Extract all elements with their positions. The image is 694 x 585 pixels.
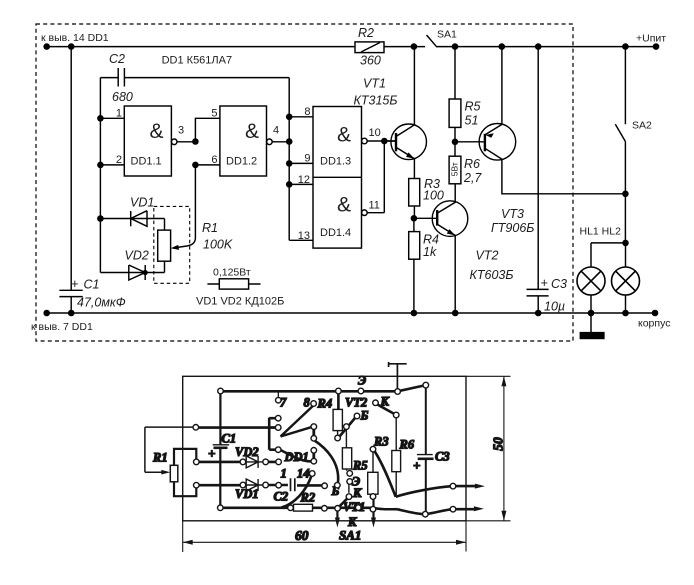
- svg-text:VD2: VD2: [125, 249, 149, 263]
- svg-text:R2: R2: [300, 491, 316, 505]
- svg-text:R1: R1: [152, 451, 168, 465]
- svg-text:DD1.1: DD1.1: [131, 156, 162, 168]
- svg-text:VD2: VD2: [235, 445, 259, 459]
- svg-text:C2: C2: [274, 490, 289, 504]
- svg-text:680: 680: [112, 90, 133, 104]
- svg-text:R6: R6: [399, 438, 415, 452]
- svg-text:R1: R1: [202, 221, 218, 235]
- svg-text:R6: R6: [464, 157, 480, 171]
- svg-text:КТ315Б: КТ315Б: [354, 94, 398, 108]
- svg-text:47,0мкФ: 47,0мкФ: [77, 296, 126, 310]
- svg-text:1: 1: [281, 467, 287, 481]
- svg-text:100: 100: [423, 189, 444, 203]
- svg-text:5Вт: 5Вт: [450, 162, 460, 176]
- svg-text:11: 11: [369, 200, 380, 212]
- svg-text:DD1.4: DD1.4: [320, 227, 351, 239]
- svg-text:корпус: корпус: [638, 318, 670, 330]
- svg-text:5: 5: [211, 108, 217, 120]
- svg-text:&: &: [337, 124, 351, 147]
- svg-text:+: +: [71, 276, 79, 291]
- svg-text:2: 2: [116, 154, 122, 166]
- svg-text:C2: C2: [109, 52, 125, 66]
- svg-text:ГТ906Б: ГТ906Б: [491, 221, 534, 235]
- svg-text:51: 51: [465, 114, 479, 128]
- svg-text:&: &: [245, 120, 259, 143]
- svg-text:Б: Б: [360, 409, 369, 423]
- svg-text:R4: R4: [317, 397, 333, 411]
- svg-text:&: &: [337, 194, 351, 217]
- svg-text:R5: R5: [465, 100, 481, 114]
- svg-text:SA1: SA1: [437, 29, 457, 41]
- svg-text:VD1: VD1: [130, 196, 154, 210]
- svg-text:+Uпит: +Uпит: [636, 33, 666, 45]
- svg-text:C1: C1: [84, 278, 100, 292]
- svg-text:60: 60: [295, 528, 309, 543]
- svg-text:100K: 100K: [203, 238, 233, 252]
- svg-text:VT2: VT2: [345, 396, 367, 410]
- svg-text:8: 8: [304, 396, 311, 410]
- svg-text:+: +: [541, 275, 549, 290]
- svg-text:VT3: VT3: [501, 207, 524, 221]
- svg-text:360: 360: [360, 54, 381, 68]
- svg-text:КТ603Б: КТ603Б: [470, 268, 514, 282]
- svg-text:HL1 HL2: HL1 HL2: [580, 226, 622, 238]
- svg-text:R3: R3: [373, 435, 389, 449]
- svg-text:к выв. 14 DD1: к выв. 14 DD1: [41, 32, 109, 44]
- svg-text:C3: C3: [551, 277, 567, 291]
- svg-text:VT2: VT2: [476, 249, 499, 263]
- svg-text:VD1 VD2 КД102Б: VD1 VD2 КД102Б: [196, 296, 284, 308]
- svg-text:+: +: [208, 446, 215, 461]
- svg-text:C3: C3: [435, 450, 450, 464]
- svg-text:14: 14: [297, 467, 310, 481]
- svg-text:VD1: VD1: [235, 487, 259, 501]
- svg-text:VT1: VT1: [343, 500, 365, 514]
- svg-text:10: 10: [369, 127, 381, 139]
- svg-text:SA2: SA2: [632, 120, 652, 132]
- svg-text:0,125Вт: 0,125Вт: [213, 267, 251, 279]
- svg-text:VT1: VT1: [363, 77, 386, 91]
- svg-text:9: 9: [304, 153, 310, 165]
- svg-text:Э: Э: [358, 374, 366, 388]
- svg-text:+: +: [413, 458, 420, 473]
- svg-text:10µ: 10µ: [544, 300, 565, 314]
- svg-text:C1: C1: [222, 432, 237, 446]
- svg-text:12: 12: [298, 174, 310, 186]
- svg-text:DD1.3: DD1.3: [320, 156, 351, 168]
- svg-text:к выв. 7 DD1: к выв. 7 DD1: [31, 321, 93, 333]
- svg-text:SA1: SA1: [339, 528, 361, 543]
- svg-text:13: 13: [298, 230, 310, 242]
- svg-text:4: 4: [273, 125, 279, 137]
- svg-text:1: 1: [116, 108, 122, 120]
- svg-text:50: 50: [491, 437, 506, 451]
- svg-text:DD1 К561ЛА7: DD1 К561ЛА7: [162, 55, 233, 67]
- svg-text:&: &: [149, 120, 163, 143]
- svg-text:1k: 1k: [423, 245, 437, 259]
- svg-text:6: 6: [211, 154, 217, 166]
- svg-text:8: 8: [304, 106, 310, 118]
- svg-text:К: К: [352, 486, 363, 500]
- svg-text:7: 7: [280, 396, 287, 410]
- svg-text:R2: R2: [358, 26, 374, 40]
- svg-text:R5: R5: [352, 459, 368, 473]
- svg-text:DD1.2: DD1.2: [226, 156, 257, 168]
- svg-text:2,7: 2,7: [463, 171, 482, 185]
- svg-text:3: 3: [178, 125, 184, 137]
